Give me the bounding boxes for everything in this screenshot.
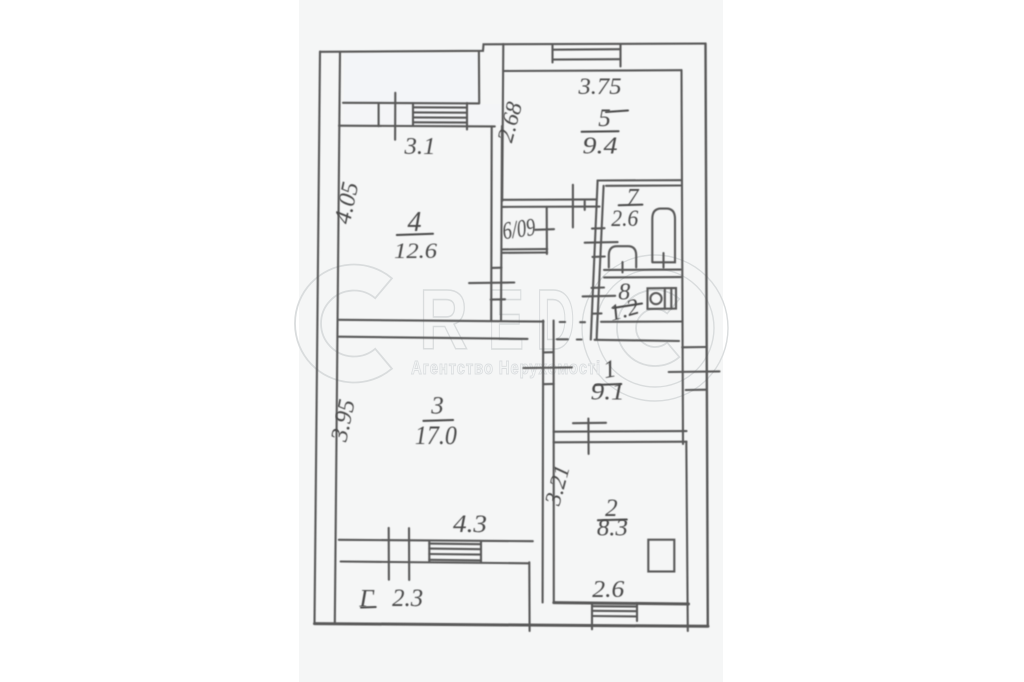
svg-text:D: D xyxy=(536,273,575,368)
svg-text:2.6: 2.6 xyxy=(611,206,638,231)
svg-text:3.21: 3.21 xyxy=(540,462,575,508)
svg-text:6/09: 6/09 xyxy=(501,214,538,245)
svg-text:2.6: 2.6 xyxy=(592,577,624,603)
svg-text:5: 5 xyxy=(598,105,611,132)
svg-text:3.1: 3.1 xyxy=(403,134,435,160)
svg-text:3.95: 3.95 xyxy=(326,397,360,444)
svg-text:17.0: 17.0 xyxy=(415,421,457,450)
svg-text:2.3: 2.3 xyxy=(392,585,423,612)
svg-text:4.3: 4.3 xyxy=(453,511,487,538)
svg-text:3.75: 3.75 xyxy=(577,74,621,99)
svg-text:4.05: 4.05 xyxy=(330,180,364,226)
svg-text:9.4: 9.4 xyxy=(583,134,618,160)
svg-text:12.6: 12.6 xyxy=(394,238,437,263)
svg-text:3: 3 xyxy=(430,393,444,420)
